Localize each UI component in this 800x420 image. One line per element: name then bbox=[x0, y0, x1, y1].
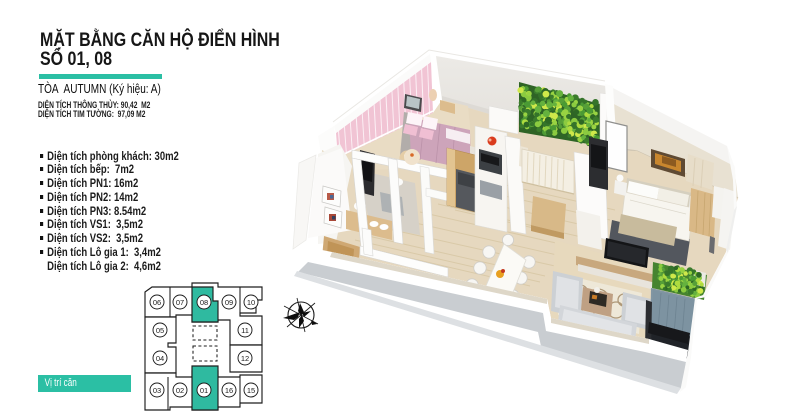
svg-text:01: 01 bbox=[200, 386, 208, 395]
svg-text:07: 07 bbox=[176, 298, 184, 307]
svg-text:02: 02 bbox=[176, 386, 184, 395]
svg-text:12: 12 bbox=[241, 354, 249, 363]
svg-text:16: 16 bbox=[225, 386, 233, 395]
svg-text:04: 04 bbox=[156, 354, 164, 363]
svg-text:09: 09 bbox=[225, 298, 233, 307]
svg-text:10: 10 bbox=[247, 298, 255, 307]
svg-text:05: 05 bbox=[156, 326, 164, 335]
svg-text:06: 06 bbox=[153, 298, 161, 307]
svg-text:11: 11 bbox=[241, 326, 249, 335]
svg-text:03: 03 bbox=[153, 386, 161, 395]
svg-text:08: 08 bbox=[200, 298, 208, 307]
svg-text:15: 15 bbox=[247, 386, 255, 395]
